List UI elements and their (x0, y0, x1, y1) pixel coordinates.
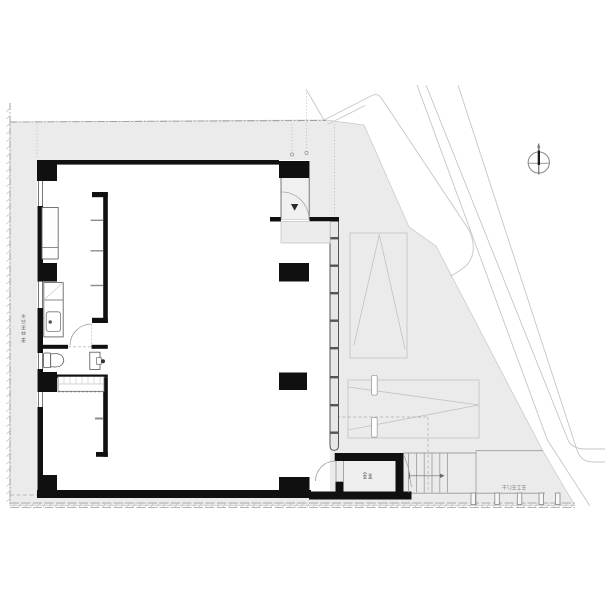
svg-text:N: N (537, 145, 540, 150)
